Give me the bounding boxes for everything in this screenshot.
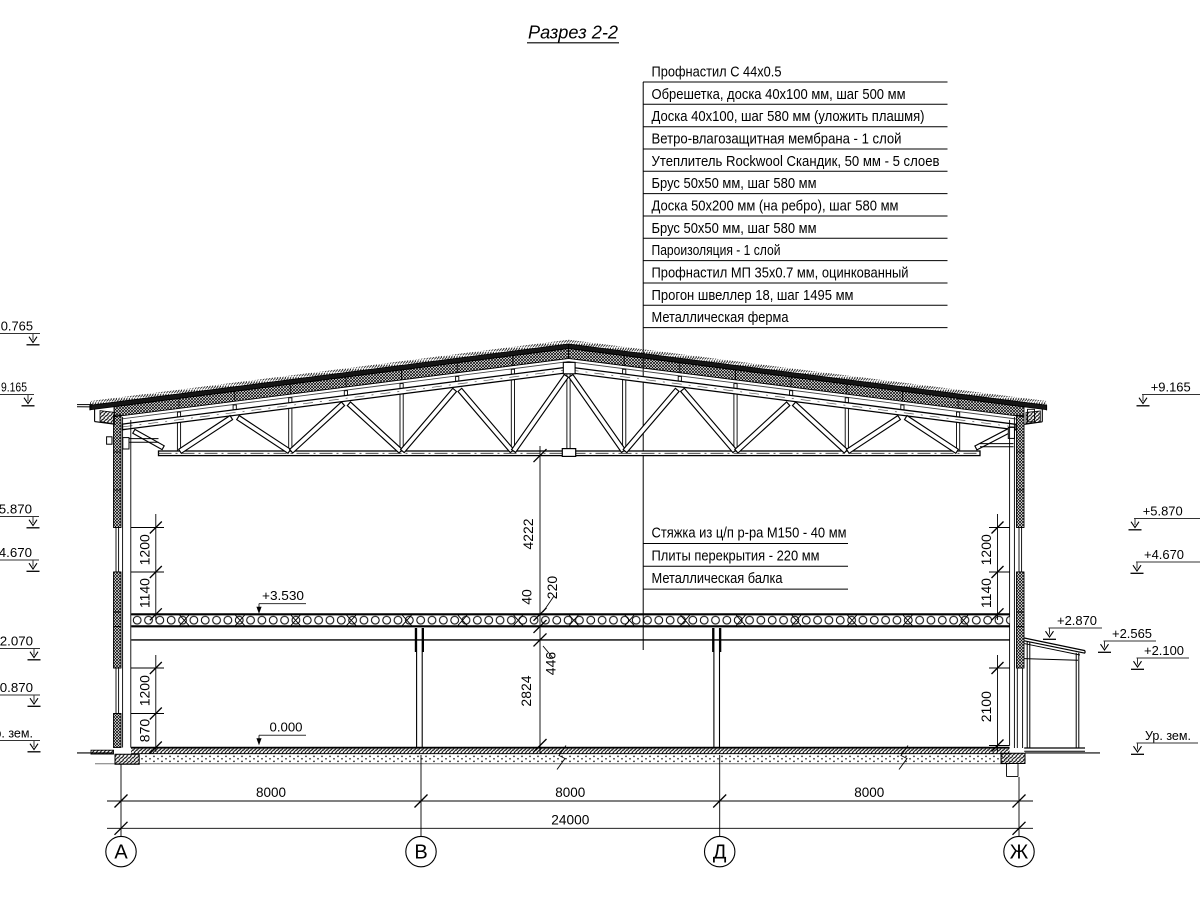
svg-text:Стяжка из ц/п р-ра М150 - 40 м: Стяжка из ц/п р-ра М150 - 40 мм <box>652 525 847 542</box>
svg-text:+5.870: +5.870 <box>0 501 32 516</box>
svg-text:40: 40 <box>519 589 535 605</box>
svg-text:870: 870 <box>137 719 153 743</box>
svg-text:2100: 2100 <box>978 691 994 722</box>
svg-text:Прогон швеллер 18, шаг 1495 мм: Прогон швеллер 18, шаг 1495 мм <box>652 287 854 304</box>
svg-text:+2.870: +2.870 <box>1057 613 1097 628</box>
svg-text:Д: Д <box>713 842 727 864</box>
svg-text:+4.670: +4.670 <box>1144 547 1184 562</box>
svg-text:220: 220 <box>544 576 560 600</box>
svg-text:+9.165: +9.165 <box>1151 379 1191 394</box>
svg-text:Металлическая ферма: Металлическая ферма <box>652 309 790 326</box>
svg-text:24000: 24000 <box>551 811 589 827</box>
svg-text:Профнастил МП 35х0.7 мм, оцинк: Профнастил МП 35х0.7 мм, оцинкованный <box>652 265 909 282</box>
svg-text:В: В <box>414 842 427 864</box>
svg-text:Доска 50х200 мм (на ребро), ша: Доска 50х200 мм (на ребро), шаг 580 мм <box>652 198 899 215</box>
svg-text:Обрешетка, доска 40х100 мм, ша: Обрешетка, доска 40х100 мм, шаг 500 мм <box>652 86 906 103</box>
svg-text:Ур. зем.: Ур. зем. <box>1145 728 1191 743</box>
svg-text:2824: 2824 <box>518 675 534 706</box>
svg-text:8000: 8000 <box>256 784 286 800</box>
svg-text:+2.070: +2.070 <box>0 633 33 648</box>
svg-text:1200: 1200 <box>137 675 153 706</box>
svg-text:1140: 1140 <box>137 578 153 608</box>
svg-text:1200: 1200 <box>978 534 994 565</box>
svg-text:Профнастил С 44х0.5: Профнастил С 44х0.5 <box>652 64 782 81</box>
svg-text:Ур. зем.: Ур. зем. <box>0 725 33 740</box>
svg-text:Металлическая балка: Металлическая балка <box>652 570 784 587</box>
svg-text:+0.870: +0.870 <box>0 680 33 695</box>
svg-text:Утеплитель Rockwool Скандик, 5: Утеплитель Rockwool Скандик, 50 мм - 5 с… <box>652 153 940 170</box>
svg-text:+2.100: +2.100 <box>1144 643 1184 658</box>
svg-text:0.000: 0.000 <box>270 720 303 735</box>
svg-text:446: 446 <box>543 652 559 676</box>
svg-text:8000: 8000 <box>555 784 585 800</box>
svg-text:Доска 40х100, шаг 580 мм (улож: Доска 40х100, шаг 580 мм (уложить плашмя… <box>652 108 925 125</box>
svg-text:+2.565: +2.565 <box>1112 626 1152 641</box>
svg-text:Плиты перекрытия - 220 мм: Плиты перекрытия - 220 мм <box>652 547 820 564</box>
svg-text:+5.870: +5.870 <box>1143 503 1183 518</box>
svg-text:+4.670: +4.670 <box>0 545 32 560</box>
svg-text:+3.530: +3.530 <box>262 588 304 603</box>
svg-text:8000: 8000 <box>854 784 884 800</box>
svg-text:Разрез 2-2: Разрез 2-2 <box>528 23 618 43</box>
svg-text:1200: 1200 <box>137 534 153 565</box>
svg-text:4222: 4222 <box>520 518 536 549</box>
svg-text:Ветро-влагозащитная мембрана -: Ветро-влагозащитная мембрана - 1 слой <box>652 131 902 148</box>
svg-text:1140: 1140 <box>978 578 994 608</box>
svg-text:+10.765: +10.765 <box>0 318 33 333</box>
svg-text:Пароизоляция - 1 слой: Пароизоляция - 1 слой <box>652 242 781 259</box>
svg-text:Ж: Ж <box>1010 842 1029 864</box>
svg-text:А: А <box>114 842 128 864</box>
svg-text:Брус 50х50 мм, шаг 580 мм: Брус 50х50 мм, шаг 580 мм <box>652 175 817 192</box>
svg-text:9.165: 9.165 <box>1 379 27 394</box>
svg-text:Брус 50х50 мм, шаг 580 мм: Брус 50х50 мм, шаг 580 мм <box>652 220 817 237</box>
